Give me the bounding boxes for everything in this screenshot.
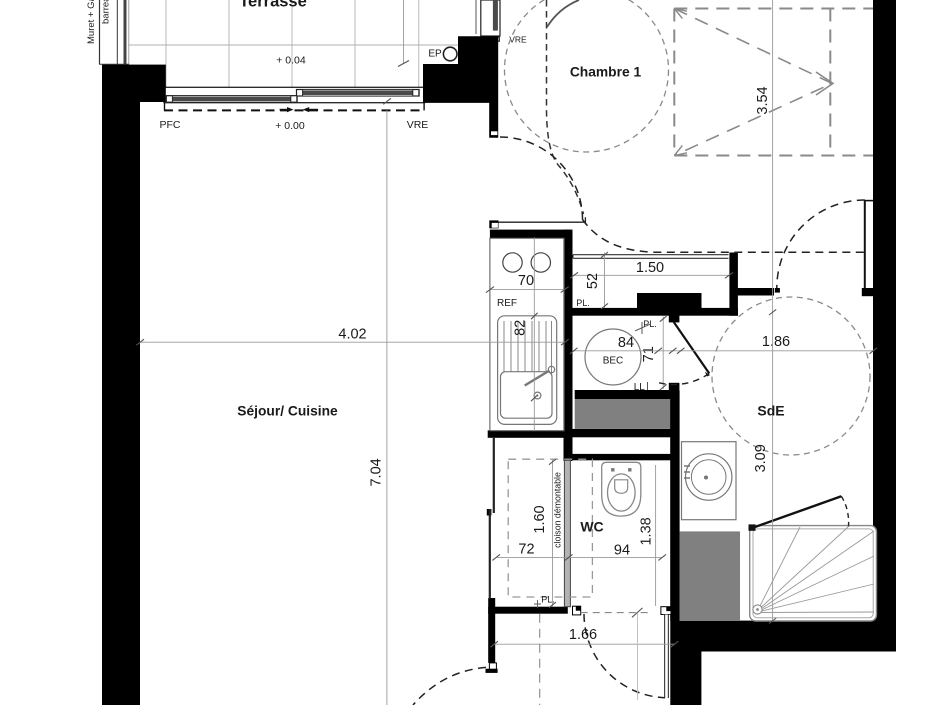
svg-text:52: 52 — [585, 273, 601, 289]
svg-text:Muret + Garde corps: Muret + Garde corps — [86, 0, 97, 44]
svg-text:barreaudage: barreaudage — [101, 0, 112, 24]
svg-text:1.86: 1.86 — [762, 334, 790, 350]
svg-text:Séjour/ Cuisine: Séjour/ Cuisine — [237, 404, 338, 419]
svg-text:94: 94 — [614, 542, 630, 558]
svg-text:EP: EP — [428, 48, 442, 59]
svg-text:3.09: 3.09 — [753, 444, 769, 472]
svg-text:cloison démontable: cloison démontable — [553, 472, 563, 548]
svg-text:1.38: 1.38 — [638, 517, 654, 545]
svg-text:70: 70 — [518, 273, 534, 289]
svg-text:71: 71 — [641, 346, 657, 362]
svg-text:BEC: BEC — [603, 356, 624, 367]
svg-text:+ 0.04: + 0.04 — [276, 54, 306, 66]
svg-text:+ 0.00: + 0.00 — [275, 120, 305, 132]
svg-text:84: 84 — [618, 335, 634, 351]
svg-text:Chambre 1: Chambre 1 — [570, 65, 642, 80]
svg-text:PL.: PL. — [576, 298, 590, 308]
svg-text:Terrasse: Terrasse — [239, 0, 307, 10]
svg-text:REF: REF — [497, 298, 517, 309]
svg-text:SdE: SdE — [757, 403, 784, 419]
svg-text:1.50: 1.50 — [636, 260, 664, 276]
svg-text:WC: WC — [580, 519, 603, 535]
svg-text:1.60: 1.60 — [532, 505, 548, 533]
svg-text:PFC: PFC — [160, 119, 181, 131]
svg-text:72: 72 — [518, 542, 534, 558]
svg-text:7.04: 7.04 — [368, 458, 384, 486]
svg-text:VRE: VRE — [509, 35, 527, 45]
svg-text:1.66: 1.66 — [569, 627, 597, 643]
svg-text:4.02: 4.02 — [338, 327, 366, 343]
svg-text:82: 82 — [512, 320, 528, 336]
svg-text:VRE: VRE — [407, 119, 429, 131]
svg-text:PL.: PL. — [541, 594, 555, 604]
svg-text:LL: LL — [634, 382, 646, 393]
svg-text:3.54: 3.54 — [755, 86, 771, 114]
